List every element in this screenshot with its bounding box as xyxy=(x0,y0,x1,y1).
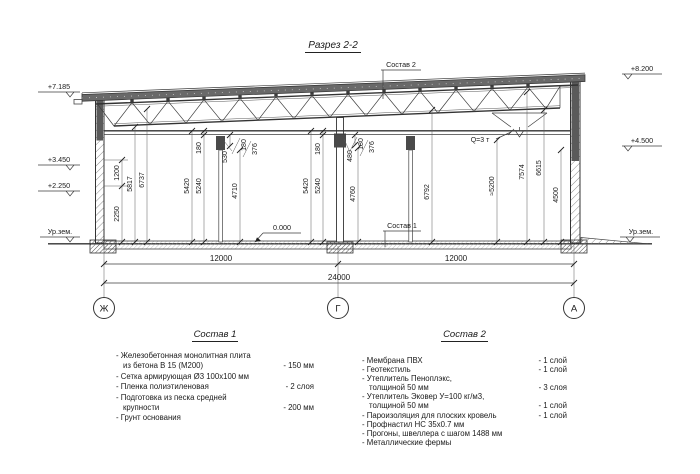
elev-ground-left: Ур.зем. xyxy=(48,227,72,236)
section-drawing: 1200 2250 5817 6737 5420 5240 180 530 18… xyxy=(0,0,700,330)
list-item: толщиной 50 мм- 1 слой xyxy=(362,401,567,410)
legend-sostav-1: Состав 1 - Железобетонная монолитная пли… xyxy=(116,329,314,424)
elev-4500: +4.500 xyxy=(631,136,653,145)
list-item: - Утеплитель Эковер У=100 кг/м3, xyxy=(362,392,567,401)
dim-6615: 6615 xyxy=(536,160,543,176)
list-item: толщиной 50 мм- 3 слоя xyxy=(362,383,567,392)
dim-180b: 180 xyxy=(241,139,248,151)
list-item: - Мембрана ПВХ- 1 слой xyxy=(362,356,567,365)
list-item: - Профнастил НС 35х0.7 мм xyxy=(362,420,567,429)
elev-ground-right: Ур.зем. xyxy=(629,227,653,236)
axis-bubbles: Ж Г А xyxy=(94,298,585,319)
dim-5240a: 5240 xyxy=(196,178,203,194)
dim-376a: 376 xyxy=(252,143,259,155)
callout-sostav2: Состав 2 xyxy=(386,60,416,69)
dim-180a: 180 xyxy=(196,142,203,154)
dim-7574: 7574 xyxy=(519,164,526,180)
list-item: - Пленка полиэтиленовая- 2 слоя xyxy=(116,382,314,392)
elev-2250: +2.250 xyxy=(48,181,70,190)
dim-4710: 4710 xyxy=(232,183,239,199)
list-item: - Металлические фермы xyxy=(362,438,567,447)
list-item: - Железобетонная монолитная плита xyxy=(116,351,314,361)
axis-zh: Ж xyxy=(100,304,109,315)
dim-2250: 2250 xyxy=(114,206,121,222)
crane-capacity-label: Q=3 т xyxy=(471,137,490,144)
roof-assembly xyxy=(74,73,585,104)
dim-376b: 376 xyxy=(369,141,376,153)
elev-zero: 0.000 xyxy=(273,223,291,232)
legend-2-heading: Состав 2 xyxy=(362,329,567,342)
dim-530: 530 xyxy=(222,151,229,163)
left-wall xyxy=(96,100,105,244)
callout-sostav1: Состав 1 xyxy=(387,221,417,230)
list-item: крупности- 200 мм xyxy=(116,403,314,413)
elev-7185: +7.185 xyxy=(48,82,70,91)
dim-6737: 6737 xyxy=(139,172,146,188)
dim-5200: ≈5200 xyxy=(489,176,496,196)
list-item: - Прогоны, швеллера с шагом 1488 мм xyxy=(362,429,567,438)
dim-1200: 1200 xyxy=(114,165,121,181)
drawing-sheet: Разрез 2-2 xyxy=(0,0,700,474)
axis-g: Г xyxy=(335,304,340,315)
list-item: - Геотекстиль- 1 слой xyxy=(362,365,567,374)
dim-4760: 4760 xyxy=(350,186,357,202)
elev-3450: +3.450 xyxy=(48,155,70,164)
right-wall xyxy=(568,76,582,243)
dim-5420a: 5420 xyxy=(184,178,191,194)
elev-8200: +8.200 xyxy=(631,64,653,73)
dim-480: 480 xyxy=(347,150,354,162)
dim-180c: 180 xyxy=(315,143,322,155)
list-item: - Грунт основания xyxy=(116,413,314,423)
list-item: - Утеплитель Пеноплэкс, xyxy=(362,374,567,383)
dim-12000-right: 12000 xyxy=(445,254,468,263)
dim-5420b: 5420 xyxy=(303,178,310,194)
dim-180d: 180 xyxy=(358,138,365,150)
dim-12000-left: 12000 xyxy=(210,254,233,263)
column-axis-g xyxy=(334,118,346,243)
dim-5240b: 5240 xyxy=(315,178,322,194)
list-item: из бетона В 15 (М200)- 150 мм xyxy=(116,361,314,371)
legend-1-heading: Состав 1 xyxy=(116,329,314,342)
dim-4500: 4500 xyxy=(553,187,560,203)
dim-5817: 5817 xyxy=(127,176,134,192)
list-item: - Сетка армирующая Ø3 100x100 мм xyxy=(116,372,314,382)
legend-sostav-2: Состав 2 - Мембрана ПВХ- 1 слой - Геотек… xyxy=(362,329,567,447)
dim-24000: 24000 xyxy=(328,273,351,282)
axis-a: А xyxy=(571,304,578,315)
list-item: - Пароизоляция для плоских кровель- 1 сл… xyxy=(362,411,567,420)
list-item: - Подготовка из песка средней xyxy=(116,393,314,403)
dim-6792: 6792 xyxy=(424,184,431,200)
width-dimensions: 12000 12000 24000 xyxy=(210,254,468,282)
hoist-symbol xyxy=(492,113,547,139)
